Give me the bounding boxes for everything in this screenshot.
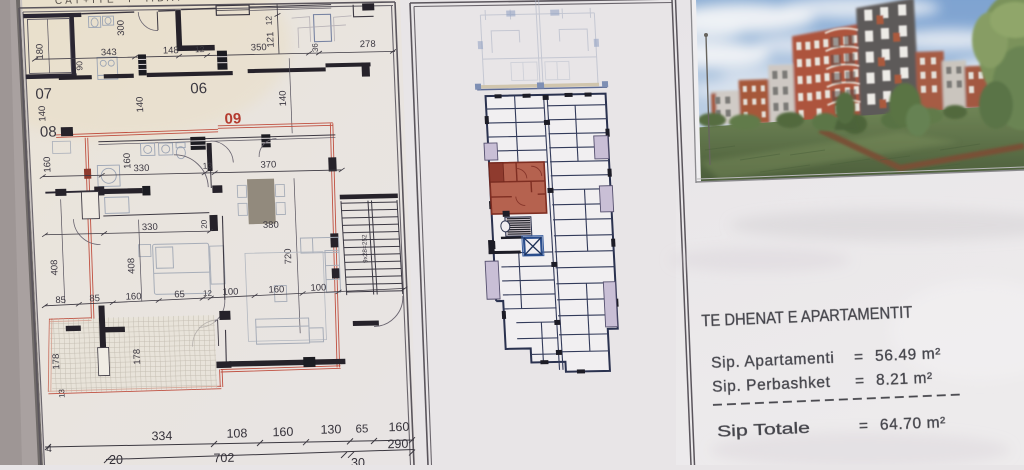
svg-text:9x28=252: 9x28=252 xyxy=(361,234,369,263)
svg-text:12: 12 xyxy=(203,289,213,298)
svg-text:148: 148 xyxy=(163,45,179,56)
svg-text:85: 85 xyxy=(89,293,100,304)
svg-text:12: 12 xyxy=(263,16,273,26)
svg-text:278: 278 xyxy=(360,39,376,50)
svg-text:180: 180 xyxy=(34,44,46,60)
svg-text:140: 140 xyxy=(135,96,147,112)
svg-text:08: 08 xyxy=(40,123,57,140)
svg-text:07: 07 xyxy=(35,85,52,102)
svg-text:65: 65 xyxy=(174,289,185,300)
svg-text:64.70 m²: 64.70 m² xyxy=(880,414,947,434)
svg-text:13: 13 xyxy=(57,388,66,398)
svg-text:350: 350 xyxy=(251,42,267,53)
svg-text:30: 30 xyxy=(351,456,365,465)
svg-text:160: 160 xyxy=(388,420,409,434)
svg-text:56.49 m²: 56.49 m² xyxy=(875,345,942,365)
svg-text:20: 20 xyxy=(200,219,209,229)
svg-text:140: 140 xyxy=(277,90,289,106)
svg-text:300: 300 xyxy=(116,20,128,36)
svg-text:100: 100 xyxy=(310,282,326,293)
svg-text:65: 65 xyxy=(355,423,368,435)
svg-text:160: 160 xyxy=(272,425,293,439)
svg-text:=: = xyxy=(855,373,865,390)
svg-text:06: 06 xyxy=(190,80,207,97)
svg-text:160: 160 xyxy=(122,153,134,169)
svg-text:408: 408 xyxy=(126,258,138,274)
svg-text:8.21 m²: 8.21 m² xyxy=(876,370,933,389)
svg-text:13: 13 xyxy=(202,161,212,171)
svg-text:100: 100 xyxy=(222,287,238,298)
svg-text:160: 160 xyxy=(268,284,284,295)
svg-text:160: 160 xyxy=(42,157,54,173)
svg-text:121: 121 xyxy=(265,32,277,48)
svg-text:178: 178 xyxy=(51,354,63,370)
svg-text:720: 720 xyxy=(283,248,295,264)
svg-text:380: 380 xyxy=(263,220,279,231)
svg-text:140: 140 xyxy=(37,106,49,122)
svg-text:=: = xyxy=(854,349,864,366)
svg-text:330: 330 xyxy=(133,163,149,174)
svg-text:178: 178 xyxy=(132,349,144,365)
svg-text:108: 108 xyxy=(226,426,247,440)
svg-text:408: 408 xyxy=(49,260,61,276)
svg-text:20: 20 xyxy=(109,453,123,465)
svg-text:334: 334 xyxy=(151,429,172,443)
svg-text:370: 370 xyxy=(260,159,276,170)
svg-text:36: 36 xyxy=(311,43,320,53)
svg-text:290: 290 xyxy=(387,437,408,451)
svg-text:343: 343 xyxy=(101,47,117,58)
svg-text:160: 160 xyxy=(125,291,141,302)
svg-text:330: 330 xyxy=(142,222,158,233)
svg-text:12: 12 xyxy=(195,44,205,54)
svg-text:702: 702 xyxy=(213,451,234,465)
svg-text:4: 4 xyxy=(46,444,52,455)
svg-text:90: 90 xyxy=(74,61,84,71)
svg-text:130: 130 xyxy=(320,422,341,436)
svg-text:85: 85 xyxy=(55,295,66,306)
svg-text:=: = xyxy=(859,417,869,434)
